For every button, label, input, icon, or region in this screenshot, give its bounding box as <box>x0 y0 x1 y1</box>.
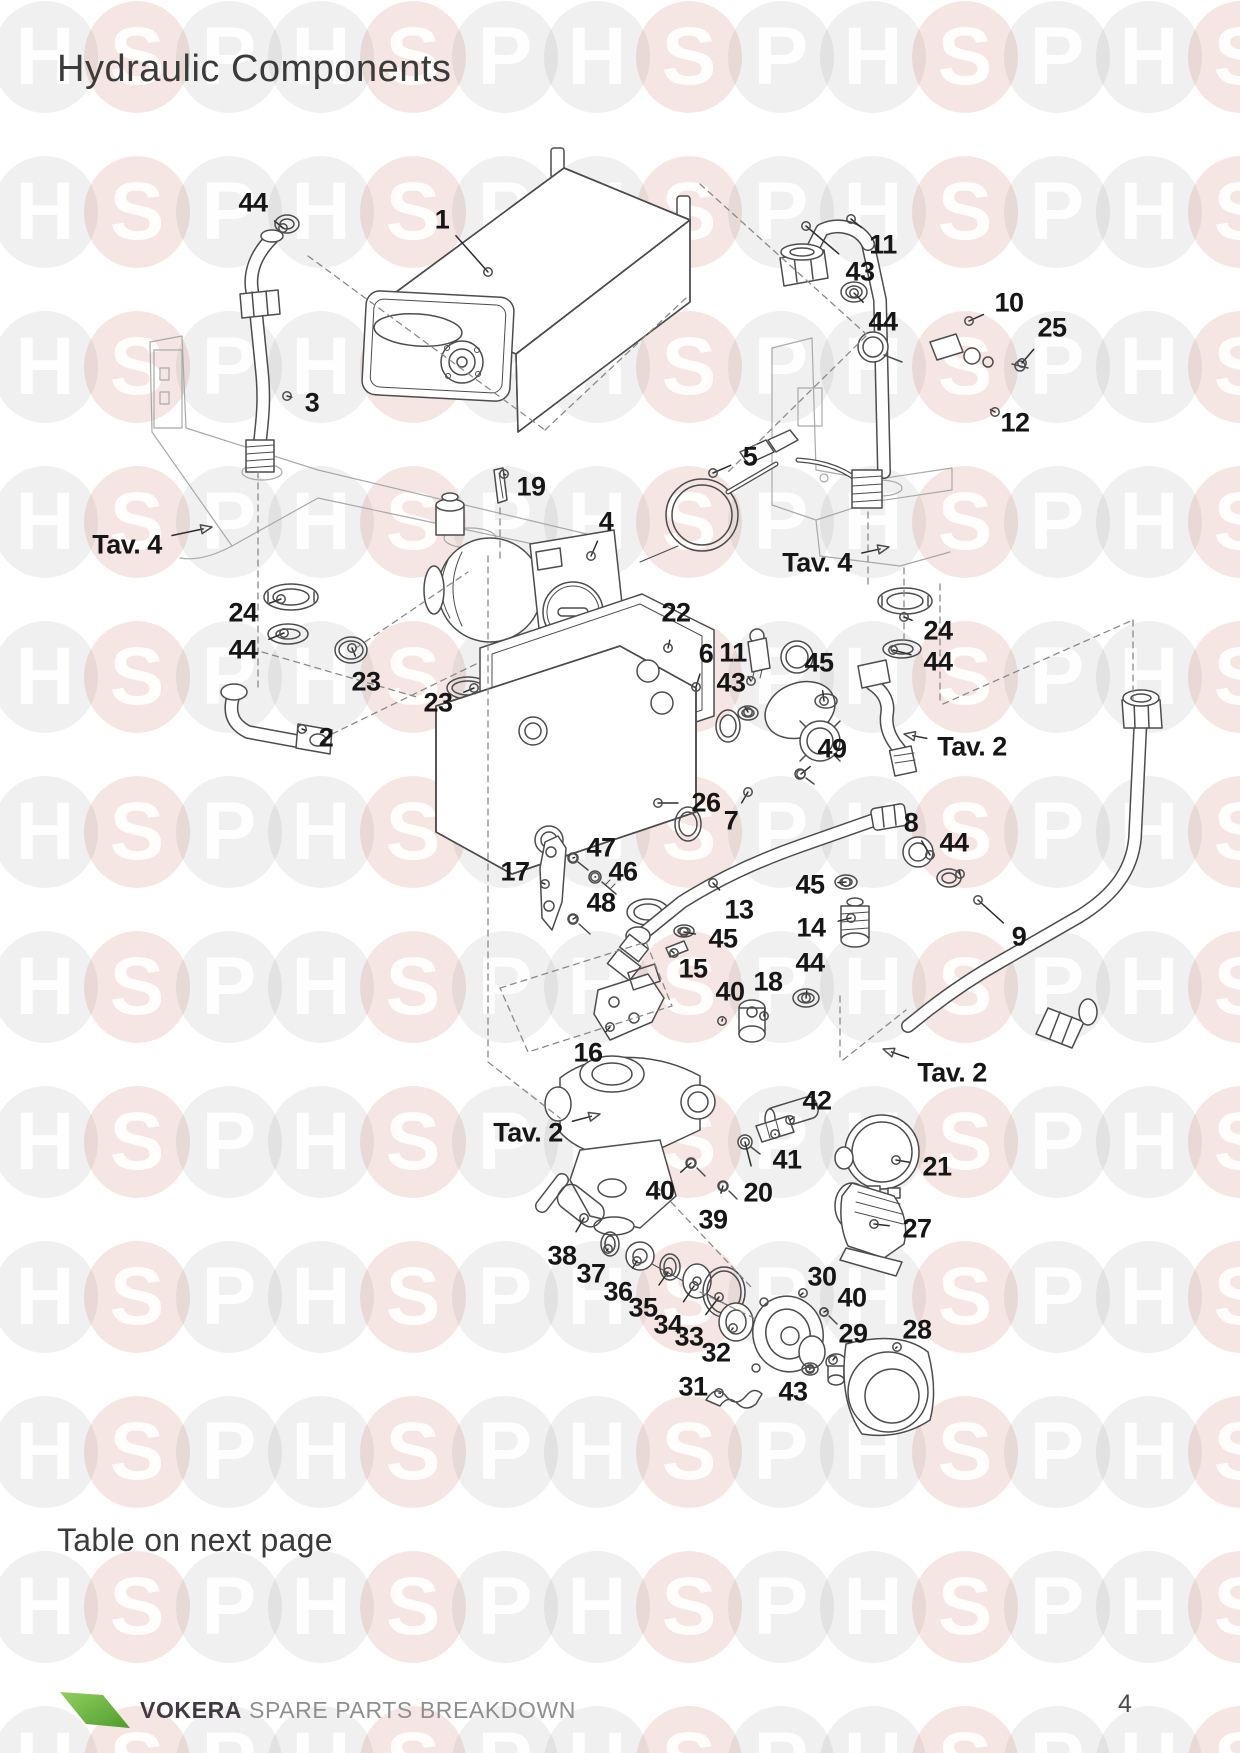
leader-line <box>764 1010 765 1016</box>
page-title: Hydraulic Components <box>57 48 451 91</box>
leader-arrowhead <box>883 1048 895 1057</box>
exploded-diagram <box>0 0 1240 1753</box>
heat-exchanger-drawing <box>361 148 690 432</box>
leader-line <box>573 857 575 858</box>
leader-line <box>722 1019 723 1021</box>
table-note: Table on next page <box>57 1522 333 1559</box>
footer-brand: VOKERA <box>140 1697 242 1723</box>
vokera-logo <box>48 1682 148 1742</box>
switch-actuator-drawing <box>835 1115 919 1276</box>
tav4-bracket-right <box>772 338 952 566</box>
return-pipe-drawing <box>780 226 1028 508</box>
leader-line <box>978 900 1003 923</box>
footer-tagline: SPARE PARTS BREAKDOWN <box>249 1697 576 1723</box>
page-number: 4 <box>1118 1690 1132 1719</box>
leader-line <box>607 1249 608 1251</box>
flow-pipe-drawing <box>240 215 299 472</box>
leader-line <box>824 1311 827 1312</box>
footer-text: VOKERA SPARE PARTS BREAKDOWN <box>140 1697 576 1724</box>
catalogue-page: HSPHSPHSPHSPHSHSPHSPHSPHSPHSHSPHSPHSPHSP… <box>0 0 1240 1753</box>
plate-heat-exchanger-drawing <box>436 594 740 925</box>
leader-line <box>172 529 203 536</box>
leader-line <box>801 1293 803 1295</box>
tav2-pipe-drawing <box>858 660 916 776</box>
thermostat-capillary-drawing <box>640 430 878 562</box>
leader-line <box>1022 349 1034 363</box>
leader-line <box>504 474 506 475</box>
diverter-valve-drawing <box>542 964 715 1235</box>
leader-line <box>862 549 880 553</box>
leader-line <box>896 1347 897 1348</box>
leader-line <box>959 870 960 874</box>
flow-group-drawing <box>738 629 843 784</box>
leader-line <box>732 1328 733 1330</box>
right-nut-washer-drawing <box>878 588 932 658</box>
